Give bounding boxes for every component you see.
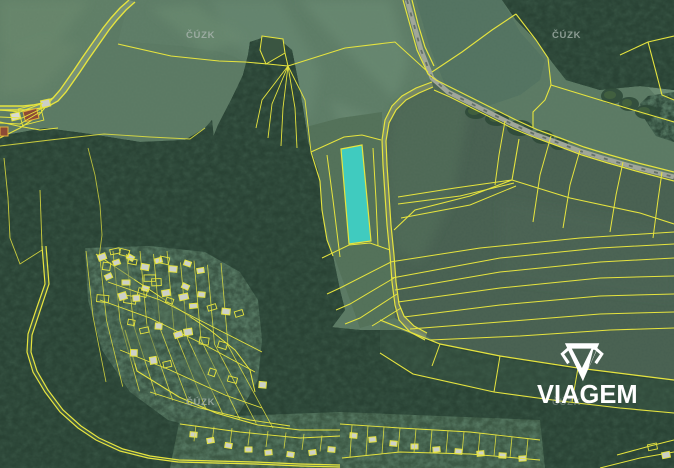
svg-text:ČÚZK: ČÚZK bbox=[552, 29, 581, 41]
svg-text:VIAGEM: VIAGEM bbox=[537, 381, 638, 409]
svg-text:ČÚZK: ČÚZK bbox=[186, 396, 215, 408]
svg-text:ČÚZK: ČÚZK bbox=[186, 29, 215, 41]
